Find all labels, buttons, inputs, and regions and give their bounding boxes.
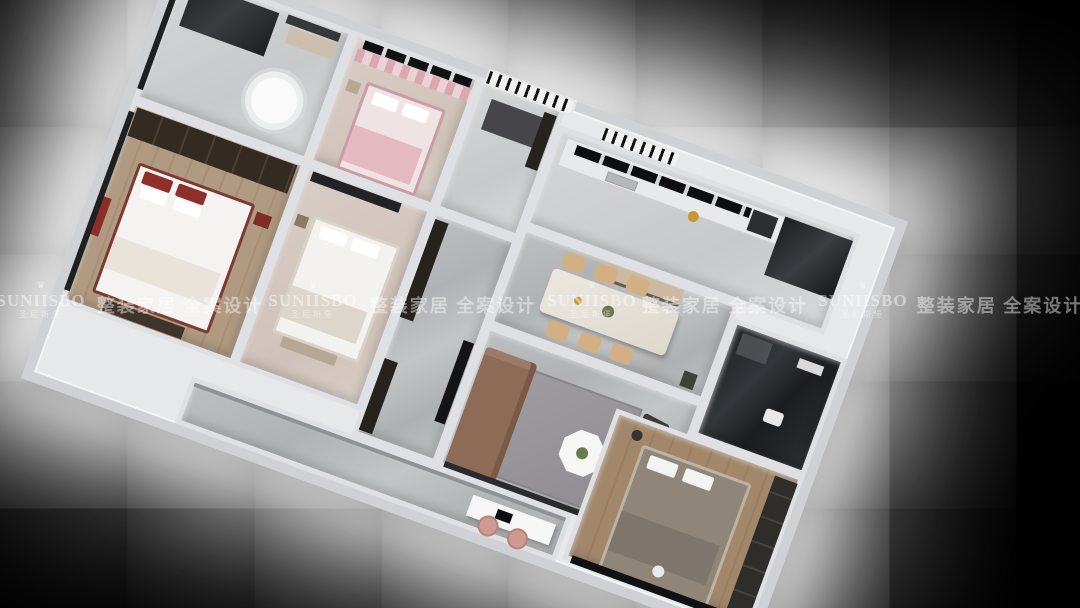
pendant-lamp bbox=[630, 428, 644, 442]
watermark-brand-name: SUNIISBO bbox=[0, 292, 101, 309]
pillow bbox=[401, 103, 430, 124]
table-plant bbox=[574, 446, 589, 461]
watermark-slogan: 整装家居 全案设计 bbox=[915, 292, 1080, 318]
watermark-brand-subtitle: 圣尼斯堡 bbox=[803, 311, 923, 319]
watermark-brand-subtitle: 圣尼斯堡 bbox=[0, 311, 101, 319]
crown-icon: ♛ bbox=[803, 281, 923, 291]
shower-tray bbox=[735, 333, 773, 365]
dining-chair bbox=[608, 342, 634, 365]
crown-icon: ♛ bbox=[532, 281, 652, 291]
watermark-slogan: 整装家居 全案设计 bbox=[95, 292, 265, 318]
shower-glass bbox=[179, 0, 279, 56]
dining-chair bbox=[576, 331, 602, 354]
watermark-brand-subtitle: 圣尼斯堡 bbox=[253, 311, 373, 319]
watermark-brand-logo: ♛ SUNIISBO 圣尼斯堡 bbox=[253, 281, 373, 319]
nightstand bbox=[294, 214, 309, 229]
watermark-brand-logo: ♛ SUNIISBO 圣尼斯堡 bbox=[0, 281, 101, 319]
pillow bbox=[318, 226, 349, 248]
watermark-slogan: 整装家居 全案设计 bbox=[368, 292, 538, 318]
nightstand bbox=[253, 212, 272, 230]
pillow bbox=[646, 455, 679, 478]
watermark-slogan: 整装家居 全案设计 bbox=[640, 292, 810, 318]
render-canvas: ♛ SUNIISBO 圣尼斯堡 整装家居 全案设计 ♛ SUNIISBO 圣尼斯… bbox=[0, 0, 1080, 608]
blanket bbox=[342, 125, 423, 185]
watermark-brand-logo: ♛ SUNIISBO 圣尼斯堡 bbox=[803, 281, 923, 319]
corner-plant bbox=[679, 370, 698, 390]
watermark-brand-name: SUNIISBO bbox=[253, 292, 373, 309]
dining-chair bbox=[544, 319, 570, 342]
watermark-brand-logo: ♛ SUNIISBO 圣尼斯堡 bbox=[532, 281, 652, 319]
pillow bbox=[350, 237, 381, 259]
pillow bbox=[682, 468, 715, 491]
sink bbox=[796, 358, 824, 376]
crown-icon: ♛ bbox=[253, 281, 373, 291]
pillow bbox=[371, 92, 400, 113]
watermark-brand-name: SUNIISBO bbox=[532, 292, 652, 309]
watermark-brand-subtitle: 圣尼斯堡 bbox=[532, 311, 652, 319]
toilet bbox=[762, 408, 785, 428]
watermark-brand-name: SUNIISBO bbox=[803, 292, 923, 309]
nightstand bbox=[345, 79, 361, 95]
bed bbox=[598, 445, 752, 608]
corner-bathtub bbox=[232, 58, 317, 143]
crown-icon: ♛ bbox=[0, 281, 101, 291]
